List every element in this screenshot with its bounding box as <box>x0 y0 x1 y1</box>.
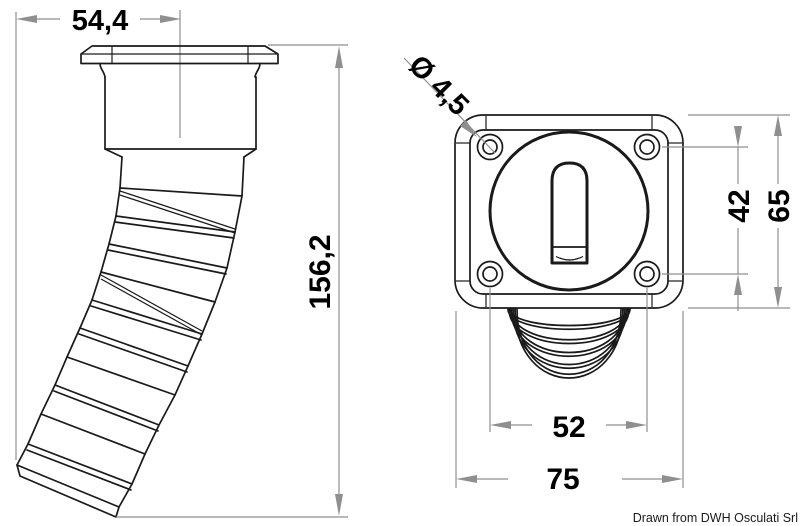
hose-spiral-line <box>120 191 235 229</box>
arrowhead-bottom <box>774 287 782 308</box>
screw-hole-outer <box>635 262 660 287</box>
arrowhead-left <box>456 475 477 483</box>
hose-rib-line <box>80 328 188 366</box>
hose-spiral-line <box>120 195 235 233</box>
neck-thread-arcs <box>508 309 630 378</box>
dimension-flange-width: 54,4 <box>16 5 181 460</box>
hose-outline <box>17 157 244 507</box>
hose-ribs <box>27 188 242 490</box>
leader-arrowhead <box>460 120 477 137</box>
dimension-label: 52 <box>552 411 585 444</box>
dimension-label: 65 <box>763 189 796 222</box>
arrowhead-top <box>734 126 742 147</box>
arrowhead-left <box>16 15 37 23</box>
arrowhead-right <box>160 15 181 23</box>
dimension-label: 54,4 <box>72 5 128 37</box>
arrowhead-left <box>490 421 511 429</box>
thread-arc <box>513 309 625 353</box>
arrowhead-top <box>774 115 782 136</box>
screw-hole-inner <box>640 140 654 154</box>
hose-rib-line <box>108 250 226 274</box>
dimension-label: Ø 4,5 <box>402 49 475 122</box>
hose-rib-line <box>28 444 132 484</box>
key-slot <box>552 163 587 263</box>
screw-hole-inner <box>483 267 497 281</box>
hose-rib-line <box>55 385 159 425</box>
hose-rib-line <box>120 188 242 196</box>
arrowhead-right <box>626 421 647 429</box>
arrowhead-bottom <box>335 494 343 516</box>
neck-fillet-right <box>255 64 260 78</box>
body-hose-transition-right <box>244 149 256 157</box>
neck-fillet-left <box>100 64 105 78</box>
credit-text: Drawn from DWH Osculati Srl <box>633 511 798 525</box>
dimension-overall-height: 156,2 <box>116 45 348 517</box>
cap-circle <box>490 132 648 290</box>
arrowhead-right <box>662 475 683 483</box>
arrowhead-top <box>335 46 343 68</box>
body-hose-transition-left <box>105 149 122 157</box>
arrowhead-bottom <box>734 274 742 295</box>
screw-hole-outer <box>478 262 503 287</box>
screw-hole-outer <box>635 135 660 160</box>
technical-drawing: 54,4 156,2 <box>0 0 800 526</box>
side-view: 54,4 156,2 <box>16 5 348 517</box>
hose-spiral-line <box>101 275 202 331</box>
screw-hole-inner <box>640 267 654 281</box>
drawing-canvas: 54,4 156,2 <box>0 0 800 526</box>
hose-rib-line <box>109 244 227 268</box>
thread-arc <box>510 309 628 326</box>
hose-rib-line <box>27 450 131 490</box>
front-view: Ø 4,5 42 65 <box>402 49 796 496</box>
hose-rib-line <box>91 306 201 340</box>
dimension-label: 75 <box>546 463 579 496</box>
hose-rib-line <box>101 272 215 302</box>
dimension-label: 42 <box>723 189 756 222</box>
dimension-hole-pitch-vertical: 42 <box>662 126 756 311</box>
dimension-label: 156,2 <box>304 234 337 309</box>
